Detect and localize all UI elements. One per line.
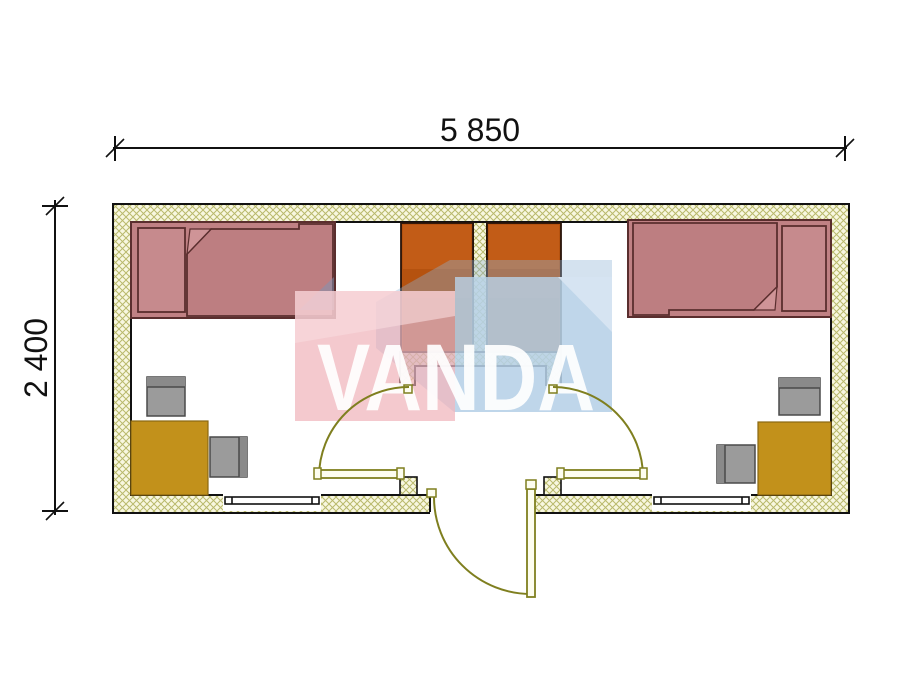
left-chair-side bbox=[210, 437, 247, 477]
left-chair-top bbox=[147, 377, 185, 416]
left-interior-door-cap bbox=[314, 468, 321, 479]
floor-plan-drawing: 5 850 2 400 bbox=[0, 0, 924, 700]
entrance-opening bbox=[430, 493, 532, 515]
entrance-door-hinge bbox=[526, 480, 536, 489]
left-window-glazing bbox=[225, 497, 319, 504]
dimension-height-label: 2 400 bbox=[18, 318, 54, 398]
left-interior-door-hinge bbox=[397, 468, 404, 479]
left-chair-side-backrest bbox=[239, 437, 247, 477]
left-window bbox=[225, 497, 319, 504]
watermark: VANDA bbox=[295, 260, 612, 431]
right-interior-door-hinge bbox=[557, 468, 564, 479]
right-window-glazing bbox=[654, 497, 749, 504]
right-interior-door-cap bbox=[640, 468, 647, 479]
right-interior-door-leaf bbox=[561, 470, 644, 478]
entrance-door-strike-block bbox=[427, 489, 436, 497]
left-chair-top-backrest bbox=[147, 377, 185, 387]
right-chair-top bbox=[779, 378, 820, 415]
left-interior-door-leaf bbox=[317, 470, 400, 478]
entrance-door-leaf bbox=[527, 489, 535, 597]
left-bed-pillow bbox=[138, 228, 185, 312]
floor-plan-canvas: 5 850 2 400 bbox=[0, 0, 924, 700]
left-desk bbox=[131, 421, 208, 495]
right-window bbox=[654, 497, 749, 504]
right-bed-pillow bbox=[782, 226, 826, 311]
right-chair-side bbox=[717, 445, 755, 483]
right-chair-side-backrest bbox=[717, 445, 725, 483]
watermark-text: VANDA bbox=[317, 325, 595, 431]
right-chair-top-backrest bbox=[779, 378, 820, 388]
right-bed bbox=[628, 220, 831, 317]
dimension-width-label: 5 850 bbox=[440, 112, 520, 148]
right-bed-blanket bbox=[633, 223, 777, 315]
right-desk bbox=[758, 422, 831, 495]
